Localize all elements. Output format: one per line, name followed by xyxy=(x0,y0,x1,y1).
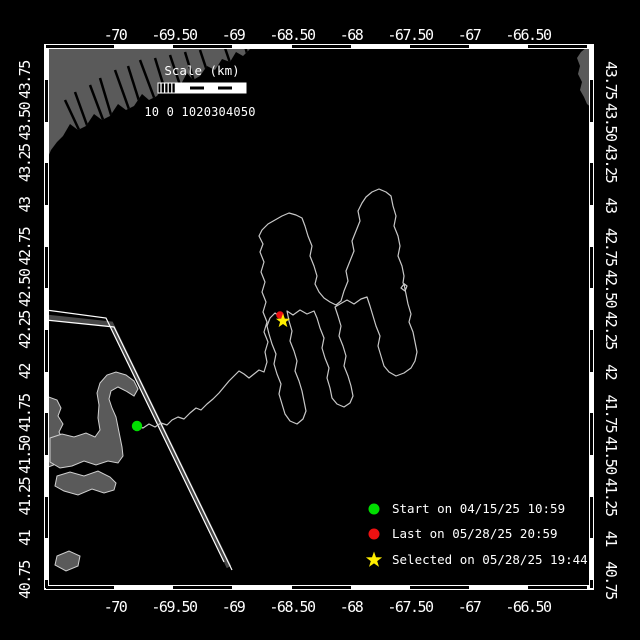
lat-tick-label-right: 41.50 xyxy=(602,436,620,475)
legend-item-last-dot: Last on 05/28/25 20:59 xyxy=(369,526,558,541)
lat-tick-label-left: 41.75 xyxy=(16,394,34,432)
scale-bar-segment-stripe xyxy=(190,87,204,90)
lat-tick-label-right: 43.25 xyxy=(602,144,620,182)
lat-tick-label-left: 42.25 xyxy=(16,311,34,349)
top-border-tick xyxy=(173,45,232,48)
lon-tick-label-top: -67 xyxy=(458,26,481,44)
lat-tick-label-left: 42 xyxy=(16,364,34,380)
lon-tick-label-top: -67.50 xyxy=(387,26,434,44)
top-border-tick xyxy=(46,45,114,48)
start-marker[interactable] xyxy=(132,421,142,431)
lon-tick-label-bottom: -69 xyxy=(222,598,246,616)
legend-last-dot-icon xyxy=(369,529,380,540)
lat-tick-label-left: 41 xyxy=(16,529,34,546)
right-border-tick xyxy=(590,497,593,538)
lat-tick-label-right: 41.25 xyxy=(602,478,620,516)
bottom-border-tick xyxy=(528,586,587,589)
bottom-border-tick xyxy=(410,586,469,589)
scale-bar-segment xyxy=(176,84,190,93)
lat-tick-label-right: 42.25 xyxy=(602,311,620,349)
top-border-tick xyxy=(528,45,587,48)
scale-bar-segment-stripe xyxy=(218,87,232,90)
right-border-tick xyxy=(590,580,593,588)
legend-item-selected-star: Selected on 05/28/25 19:44 xyxy=(366,552,588,568)
lon-tick-label-bottom: -66.50 xyxy=(505,598,552,616)
lat-tick-label-right: 42.50 xyxy=(602,269,620,308)
legend-start-dot-icon xyxy=(369,504,380,515)
lat-tick-label-left: 43.50 xyxy=(16,101,34,140)
lat-tick-label-right: 43 xyxy=(602,197,620,213)
top-border-tick xyxy=(292,45,351,48)
left-border-tick xyxy=(45,80,48,122)
bottom-border-tick xyxy=(46,586,114,589)
left-border-tick xyxy=(45,330,48,372)
right-border-tick xyxy=(590,247,593,288)
bottom-border-tick xyxy=(173,586,232,589)
lon-tick-label-bottom: -69.50 xyxy=(151,598,198,616)
lat-tick-label-right: 43.75 xyxy=(602,61,620,99)
scale-bar-segment xyxy=(204,84,218,93)
lat-tick-label-left: 42.50 xyxy=(16,268,34,307)
lat-tick-label-right: 42.75 xyxy=(602,228,620,266)
scale-bar-segment xyxy=(232,84,246,93)
right-border-tick xyxy=(590,80,593,122)
legend-label: Start on 04/15/25 10:59 xyxy=(392,501,565,516)
lat-tick-label-right: 41.75 xyxy=(602,395,620,433)
bottom-border-tick xyxy=(292,586,351,589)
map-plot[interactable]: Scale (km)10 0 1020304050Start on 04/15/… xyxy=(0,0,640,640)
lon-tick-label-top: -66.50 xyxy=(505,26,552,44)
scale-bar-tick-labels: 10 0 1020304050 xyxy=(144,105,255,119)
lat-tick-label-left: 42.75 xyxy=(16,227,34,265)
lon-tick-label-top: -70 xyxy=(104,26,128,44)
legend-label: Selected on 05/28/25 19:44 xyxy=(392,552,588,567)
lon-tick-label-top: -69 xyxy=(222,26,246,44)
glider-track-map: Scale (km)10 0 1020304050Start on 04/15/… xyxy=(0,0,640,640)
lat-tick-label-left: 40.75 xyxy=(16,561,34,599)
left-border-tick xyxy=(45,247,48,288)
top-border-tick xyxy=(410,45,469,48)
left-border-tick xyxy=(45,413,48,455)
lat-tick-label-right: 41 xyxy=(602,531,620,548)
lat-tick-label-right: 42 xyxy=(602,364,620,380)
lat-tick-label-left: 41.50 xyxy=(16,435,34,474)
right-border-tick xyxy=(590,163,593,205)
left-border-tick xyxy=(45,163,48,205)
legend-label: Last on 05/28/25 20:59 xyxy=(392,526,558,541)
lat-tick-label-left: 43.25 xyxy=(16,144,34,182)
lon-tick-label-bottom: -68.50 xyxy=(269,598,316,616)
lat-tick-label-right: 43.50 xyxy=(602,103,620,142)
legend-item-start-dot: Start on 04/15/25 10:59 xyxy=(369,501,566,516)
lat-tick-label-right: 40.75 xyxy=(602,561,620,599)
lat-tick-label-left: 43.75 xyxy=(16,61,34,99)
lon-tick-label-top: -68.50 xyxy=(269,26,316,44)
left-border-tick xyxy=(45,497,48,538)
scale-bar-title: Scale (km) xyxy=(164,63,239,78)
lat-tick-label-left: 43 xyxy=(16,197,34,213)
right-border-tick xyxy=(590,413,593,455)
lon-tick-label-top: -68 xyxy=(340,26,364,44)
lon-tick-label-bottom: -70 xyxy=(104,598,128,616)
lon-tick-label-bottom: -67.50 xyxy=(387,598,434,616)
lat-tick-label-left: 41.25 xyxy=(16,477,34,515)
lon-tick-label-bottom: -67 xyxy=(458,598,481,616)
left-border-tick xyxy=(45,580,48,588)
legend: Start on 04/15/25 10:59Last on 05/28/25 … xyxy=(366,501,588,567)
right-border-tick xyxy=(590,330,593,372)
lon-tick-label-top: -69.50 xyxy=(151,26,198,44)
lon-tick-label-bottom: -68 xyxy=(340,598,364,616)
